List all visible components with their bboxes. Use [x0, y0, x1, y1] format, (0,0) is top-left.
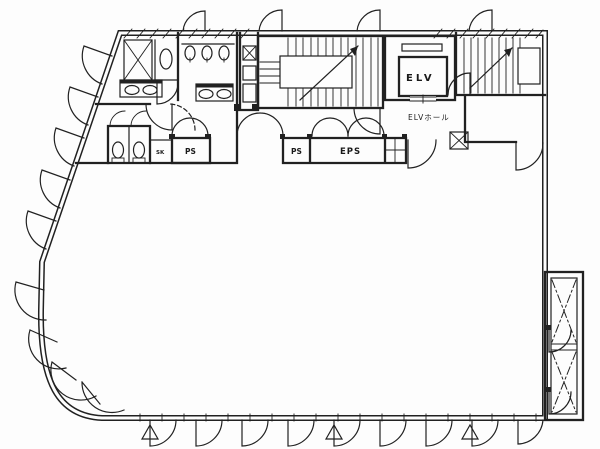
- ps-center-label: PS: [291, 147, 302, 156]
- fire-staircase: [448, 38, 540, 95]
- center-closets: PS EPS: [237, 113, 436, 168]
- office-entry-door-swing: [408, 140, 436, 168]
- elevator-hall-label: ELVホール: [408, 113, 450, 122]
- hall-entry-door-swing: [516, 142, 543, 170]
- wash-basin-counter-right: [196, 84, 233, 101]
- toilet-door-swings: [146, 104, 195, 130]
- elevator-shaft: ELV: [385, 36, 455, 103]
- urinals: [182, 44, 234, 62]
- top-wall-door-swings: [183, 10, 492, 31]
- closet-door-swings: [237, 113, 384, 136]
- duct-shaft-hatched: [124, 40, 152, 80]
- main-staircase: [258, 36, 383, 134]
- wc-closet: [155, 40, 178, 104]
- floor-plan-page: SK PS ELV ELVホール: [0, 0, 600, 449]
- bottom-window-swings: [150, 420, 543, 446]
- fire-escape-balcony: [545, 272, 583, 420]
- elevator-label: ELV: [406, 73, 435, 84]
- ps-left-label: PS: [185, 147, 196, 156]
- floor-plan-drawing: SK PS ELV ELVホール: [0, 0, 600, 449]
- ps-closet-left: PS: [169, 118, 211, 163]
- wash-basin-counter-left: [120, 80, 162, 97]
- toilet-stalls: [108, 111, 150, 163]
- sk-label: SK: [156, 150, 165, 156]
- escape-hatch-markers: [142, 425, 478, 439]
- left-wall-window-swings: [26, 46, 112, 249]
- corner-window-swings: [15, 282, 124, 413]
- outer-walls: [41, 33, 545, 418]
- stair-up-arrow: [350, 46, 358, 56]
- fire-stair-door-swing: [448, 73, 470, 95]
- fire-stair-arrow: [504, 48, 512, 57]
- cross-shaft-box: [385, 138, 406, 163]
- sk-closet: SK: [150, 140, 172, 163]
- eps-label: EPS: [340, 147, 361, 157]
